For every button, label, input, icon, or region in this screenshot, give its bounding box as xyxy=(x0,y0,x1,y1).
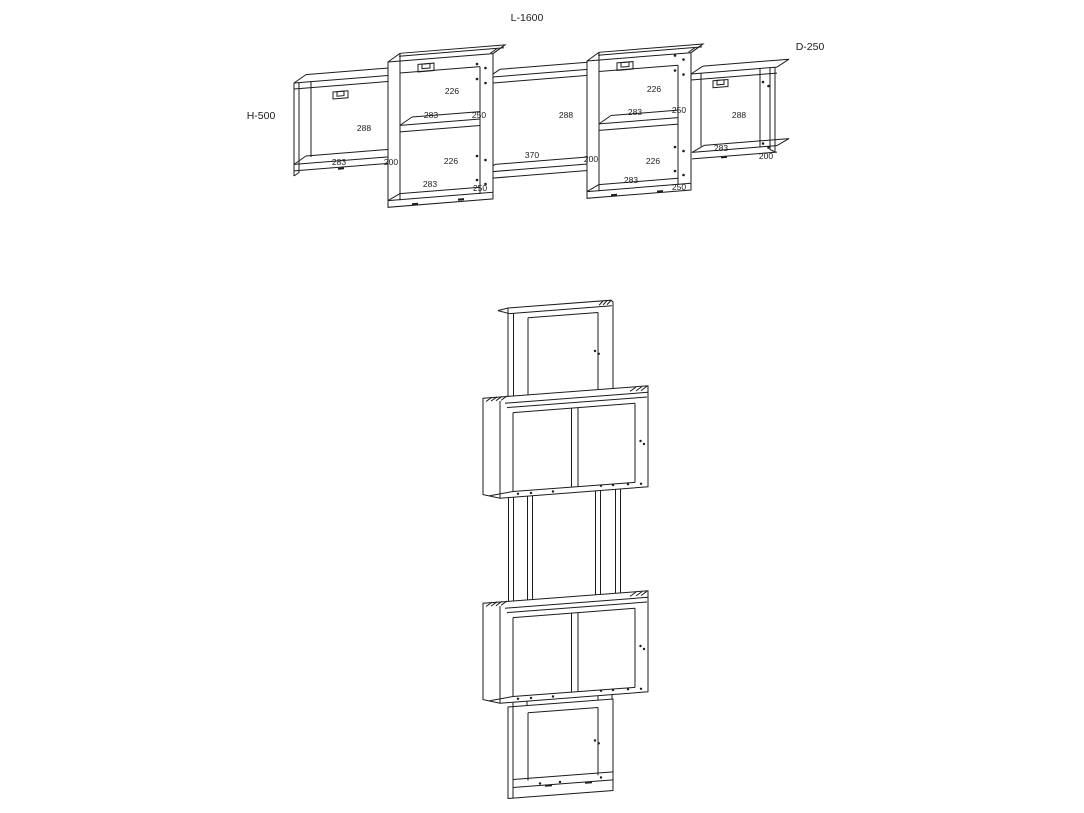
bottom-cube xyxy=(508,699,613,799)
dim-middle-width: 288 xyxy=(559,110,573,120)
dim-ltall-upper-side: 250 xyxy=(472,110,486,120)
dim-rtall-upper-depth: 283 xyxy=(628,107,642,117)
height-label: H-500 xyxy=(247,110,276,122)
dim-rtall-lower-side: 250 xyxy=(672,182,686,192)
left-tall-box xyxy=(388,45,505,207)
isometric-view-drawing xyxy=(483,300,648,798)
depth-label: D-250 xyxy=(796,41,825,53)
dim-ltall-lower-width: 226 xyxy=(444,156,458,166)
dim-ltall-upper-width: 226 xyxy=(445,86,459,96)
drill-hole-dots xyxy=(762,81,770,149)
dim-rtall-lower-width: 226 xyxy=(646,156,660,166)
dim-ltall-lower-side: 250 xyxy=(473,183,487,193)
right-tall-box xyxy=(587,44,703,198)
dim-right-box-depth: 283 xyxy=(714,143,728,153)
dim-rtall-upper-width: 226 xyxy=(647,84,661,94)
dim-ltall-upper-depth: 283 xyxy=(424,110,438,120)
front-view-drawing: L-1600 D-250 H-500 288 283 200 226 283 2… xyxy=(247,12,825,207)
dim-middle-shelf: 370 xyxy=(525,150,539,160)
upper-wide-box xyxy=(483,386,648,498)
dim-left-box-side: 200 xyxy=(384,157,398,167)
dim-ltall-lower-depth: 283 xyxy=(423,179,437,189)
dim-middle-side: 200 xyxy=(584,154,598,164)
hanger-bracket-icon xyxy=(713,80,728,88)
hanger-bracket-icon xyxy=(333,91,348,99)
top-cube xyxy=(498,300,613,404)
lower-wide-box xyxy=(483,591,648,703)
assembly-drawing: L-1600 D-250 H-500 288 283 200 226 283 2… xyxy=(0,0,1084,813)
middle-shelves xyxy=(483,61,600,179)
length-label: L-1600 xyxy=(511,12,544,24)
dim-left-box-depth: 283 xyxy=(332,157,346,167)
dim-rtall-upper-side: 250 xyxy=(672,105,686,115)
dim-rtall-lower-depth: 283 xyxy=(624,175,638,185)
dim-left-box-width: 288 xyxy=(357,123,371,133)
dim-right-box-side: 200 xyxy=(759,151,773,161)
dim-right-box-width: 288 xyxy=(732,110,746,120)
